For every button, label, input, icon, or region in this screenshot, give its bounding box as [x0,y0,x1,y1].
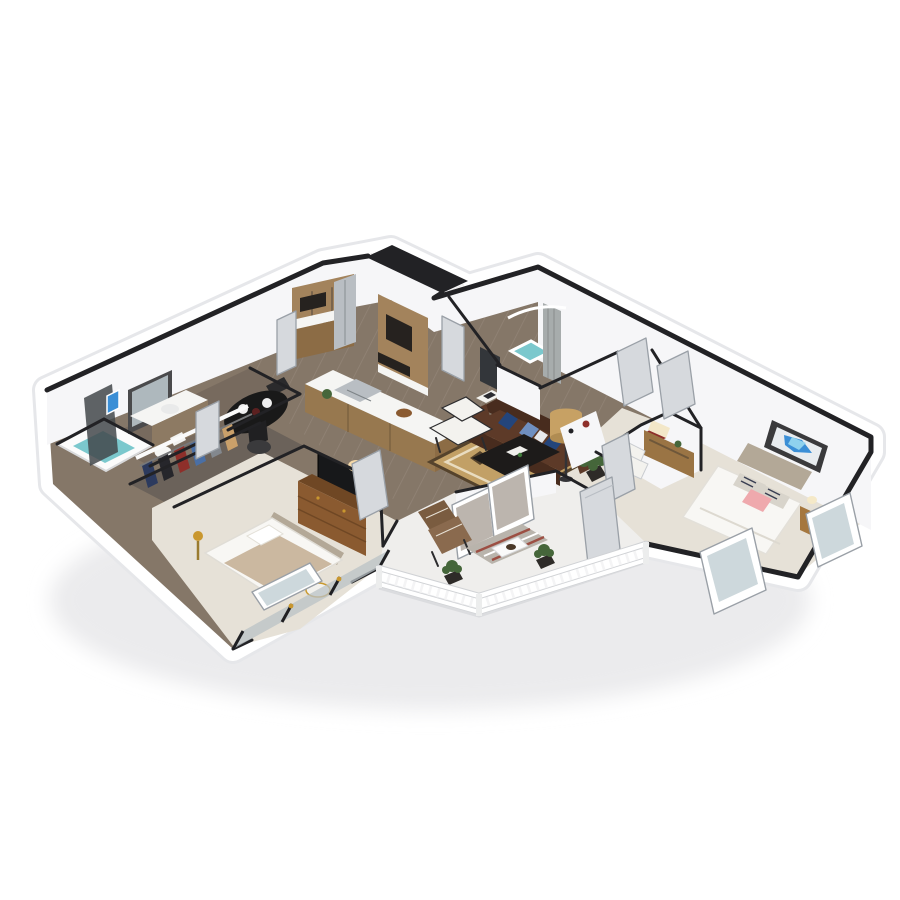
fruit-basket [396,409,412,418]
hall-decor [569,429,574,434]
door-closed [277,311,296,375]
vanity-sink [161,404,179,414]
remote [518,453,522,457]
storage-basket [247,440,271,454]
gold-floor-lamp [193,531,203,541]
floor-plan-render [0,0,900,900]
desk-plant [675,441,682,448]
door-closed [442,316,464,381]
plate [262,398,272,408]
red-clothes [583,421,590,428]
nightstand-lamp [807,496,817,504]
island-plant [322,389,332,399]
balcony-bowl [506,544,516,550]
shower-curtain [543,303,561,384]
door-bathroom1 [196,401,219,459]
